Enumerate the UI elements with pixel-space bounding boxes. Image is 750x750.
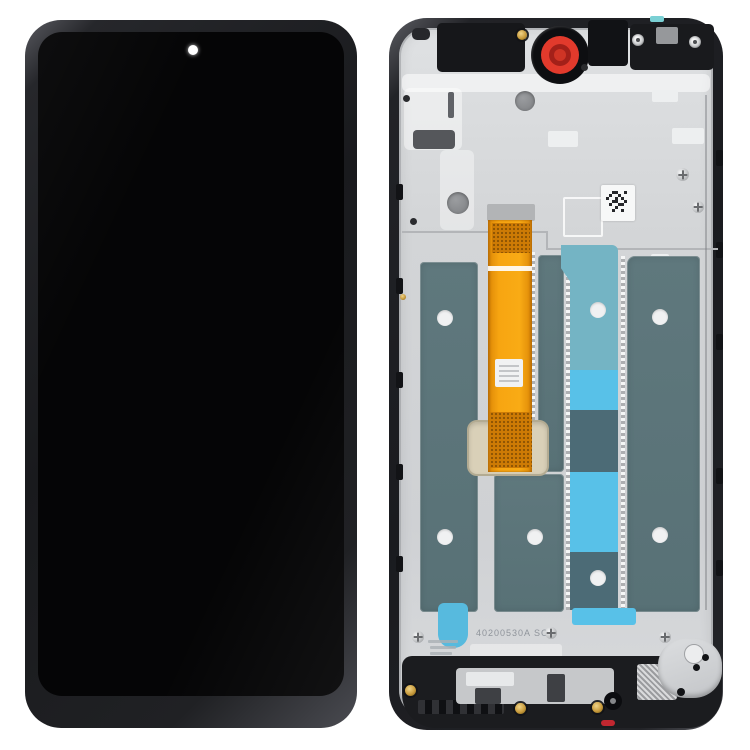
foam-pad <box>413 130 455 149</box>
adhesive-strip-segment <box>570 370 618 410</box>
camera-gasket-center <box>554 49 566 61</box>
silver-screw-icon <box>632 34 644 46</box>
label-print-marks <box>499 364 519 382</box>
frame-notch <box>716 468 723 484</box>
flex-cable-mesh <box>492 223 530 253</box>
screw-dot-icon <box>410 218 417 225</box>
frame-notch <box>716 334 723 350</box>
etched-line <box>705 95 707 610</box>
plate-hole <box>447 192 469 214</box>
connector-slot <box>475 688 501 704</box>
adhesive-strip-segment <box>570 472 618 552</box>
front-camera-hole-icon <box>188 45 198 55</box>
lcd-front-view <box>25 20 357 728</box>
frame-notch <box>396 464 403 480</box>
screw-dot-icon <box>581 64 588 71</box>
adhesive-chip <box>466 672 514 686</box>
etched-square <box>563 197 603 237</box>
connector-slot <box>547 674 565 702</box>
etched-text-mark <box>430 646 456 649</box>
frame-notch <box>396 372 403 388</box>
flex-cable-joint <box>488 266 532 271</box>
lcd-screen <box>38 32 344 696</box>
release-dot <box>527 529 543 545</box>
product-photo: 40200530A SC <box>0 0 750 750</box>
adhesive-chip <box>672 128 704 144</box>
gold-screw-icon <box>405 685 416 696</box>
gold-screw-icon <box>592 702 603 713</box>
gold-screw-icon <box>515 703 526 714</box>
frame-notch <box>716 242 723 258</box>
screw-dot-icon <box>403 95 410 102</box>
plate-hole <box>515 91 535 111</box>
adhesive-chip <box>548 131 578 147</box>
screw-dot-icon <box>693 664 700 671</box>
release-dot <box>590 302 606 318</box>
flex-cable-stiffener <box>487 204 535 221</box>
release-dot <box>590 570 606 586</box>
cross-screw-icon <box>412 631 424 643</box>
teal-sticker-tab <box>650 16 664 22</box>
etched-text-mark <box>428 640 458 643</box>
cross-screw-icon <box>659 631 671 643</box>
datamatrix-icon <box>606 191 630 215</box>
metal-highlight <box>440 150 474 230</box>
gold-contact-dot <box>400 294 406 300</box>
frame-notch <box>396 556 403 572</box>
serial-number: 40200530A SC <box>476 628 549 638</box>
cross-screw-icon <box>692 201 704 213</box>
adhesive-chip <box>652 90 678 102</box>
frame-notch <box>716 150 723 166</box>
qr-label <box>601 185 635 221</box>
silver-screw-icon <box>689 36 701 48</box>
sensor-chip <box>656 27 678 44</box>
frame-notch <box>396 184 403 200</box>
speaker-port-hole <box>684 644 704 664</box>
metal-slot <box>448 92 454 118</box>
adhesive-strip-tab <box>572 608 636 625</box>
flex-cable-label <box>495 359 523 387</box>
adhesive-strip-segment <box>570 410 618 472</box>
cross-screw-icon <box>676 168 689 181</box>
screw-dot-icon <box>677 688 685 696</box>
etched-text-mark <box>430 652 452 655</box>
flex-cable-mesh <box>490 412 532 468</box>
frame-notch <box>716 560 723 576</box>
earpiece-housing <box>588 20 628 66</box>
top-bracket <box>412 28 430 40</box>
release-dot <box>652 309 668 325</box>
frame-notch <box>396 278 403 294</box>
release-dot <box>437 310 453 326</box>
serrated-strip <box>621 256 625 610</box>
gold-screw-icon <box>517 30 527 40</box>
release-dot <box>652 527 668 543</box>
red-seal-tab <box>601 720 615 726</box>
release-dot <box>437 529 453 545</box>
screw-dot-icon <box>702 654 709 661</box>
cross-screw-icon <box>545 627 557 639</box>
top-bracket <box>437 23 525 72</box>
microphone-hole <box>610 698 616 704</box>
